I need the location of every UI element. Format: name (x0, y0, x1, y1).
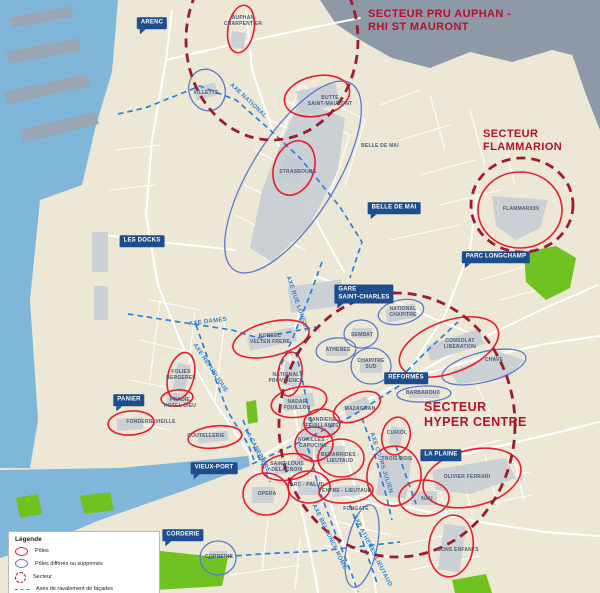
deferred-poles (183, 61, 529, 590)
axis-dashed-line-icon (15, 589, 29, 590)
legend-title: Légende (15, 536, 153, 543)
legend-item-label: Pôles différés ou supprimés (35, 561, 103, 567)
legend: Légende Pôles Pôles différés ou supprimé… (8, 531, 160, 593)
legend-item-label: Secteur (33, 574, 52, 580)
legend-item-axes: Axes de ravalement de façades (15, 586, 153, 592)
deferred-ellipse-icon (15, 559, 28, 568)
legend-item-label: Pôles (35, 548, 49, 554)
legend-item-deferred-poles: Pôles différés ou supprimés (15, 559, 153, 568)
pole-ellipse-icon (15, 547, 28, 556)
marseille-renovation-map: AUPHAN CHARPENTIERVILLETTEBUTTE SAINT-MA… (0, 0, 600, 593)
legend-item-sector: Secteur (15, 572, 153, 583)
legend-item-label: Axes de ravalement de façades (36, 586, 113, 592)
port-infrastructure-zone (320, 0, 600, 130)
map-canvas (0, 0, 600, 593)
sector-dashed-circle-icon (15, 572, 26, 583)
legend-item-poles: Pôles (15, 547, 153, 556)
